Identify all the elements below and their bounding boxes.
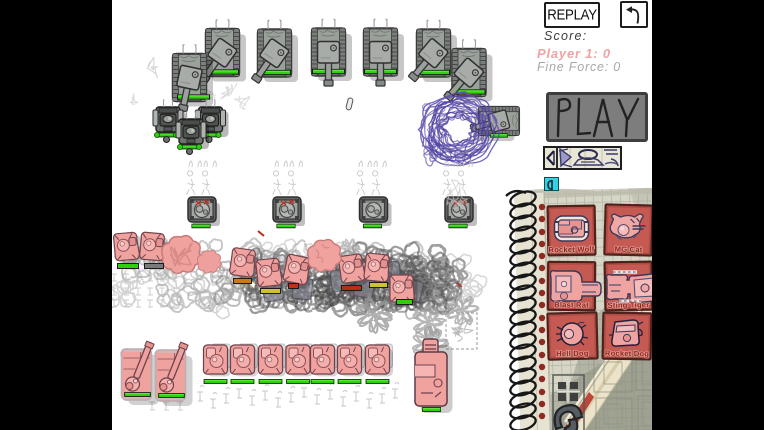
svg-text:Rocket Wolf: Rocket Wolf: [548, 245, 594, 255]
svg-text:Hell Dog: Hell Dog: [556, 349, 589, 359]
svg-text:MG Cat: MG Cat: [615, 245, 643, 255]
svg-text:Blast Rat: Blast Rat: [554, 300, 589, 309]
svg-text:Sting Tiger: Sting Tiger: [608, 300, 650, 310]
svg-text:Rocket Dog: Rocket Dog: [605, 349, 650, 359]
